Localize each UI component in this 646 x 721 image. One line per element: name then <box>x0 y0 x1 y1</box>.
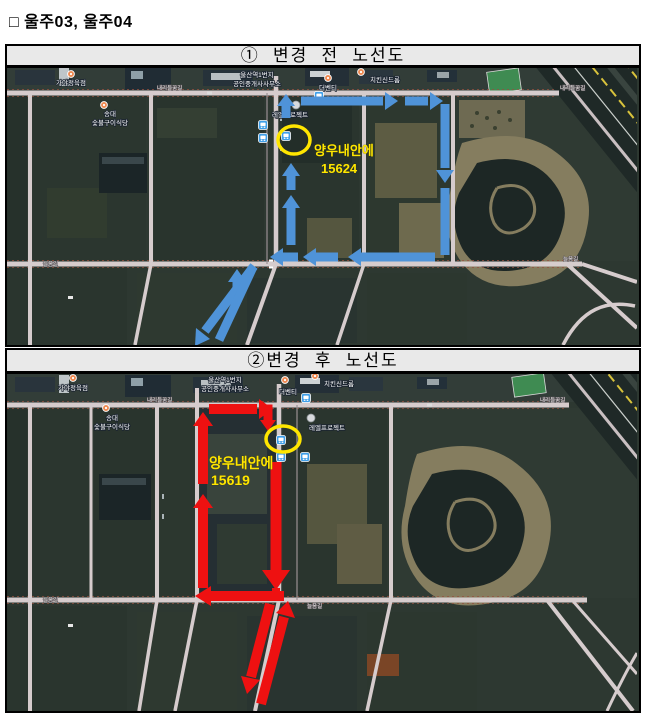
bus-stop-icon <box>259 121 268 130</box>
poi-dot-icon <box>101 102 108 109</box>
bus-stop-icon-highlighted <box>282 132 291 141</box>
label-office-line2: 공인중개사사무소 <box>201 384 249 393</box>
sports-field <box>512 374 546 397</box>
road-label-bottom: 늘음길 <box>307 602 322 610</box>
poi-dot-icon <box>325 75 332 82</box>
road-label-top: 내리들꿈길 <box>147 396 172 404</box>
panel-header-after-text: ②변경 후 노선도 <box>247 351 398 370</box>
road-label-bottom: 늘음길 <box>43 260 58 268</box>
road-label-top: 내리들꿈길 <box>560 84 585 92</box>
bus-stop-icon <box>259 134 268 143</box>
road-label-top: 내리들꿈길 <box>157 84 182 92</box>
label-chicken-shop: 치킨신드롬 <box>370 75 400 84</box>
label-office-line1: 울산역1번지 <box>208 375 242 384</box>
road-label-bottom: 늘음길 <box>563 255 578 263</box>
label-butcher-shop: 가야정육점 <box>56 78 86 87</box>
road-label-top: 내리들꿈길 <box>540 396 565 404</box>
label-project: 레엘프로젝트 <box>309 423 345 432</box>
poi-dot-icon <box>312 374 319 379</box>
label-cafe: 더벤티 <box>319 83 337 92</box>
label-restaurant-line1: 송대 <box>106 414 118 422</box>
label-restaurant-line2: 숯불구이식당 <box>92 118 128 127</box>
map-after-frame: 가야정육점 울산역1번지 공인중개사사무소 더벤티 치킨신드롬 송대 숯불구이식… <box>5 372 641 713</box>
panel-header-after: ②변경 후 노선도 <box>5 348 641 373</box>
poi-dot-icon <box>103 405 110 412</box>
label-office-line1: 울산역1번지 <box>240 70 274 79</box>
label-butcher-shop: 가야정육점 <box>58 383 88 392</box>
satellite-map-before: 가야정육점 울산역1번지 공인중개사사무소 더벤티 치킨신드롬 송대 숯불구이식… <box>7 68 637 345</box>
stop-name-annotation: 양우내안에 <box>314 143 374 158</box>
bus-stop-icon <box>277 453 286 462</box>
stop-number-annotation: 15624 <box>321 161 358 176</box>
poi-dot-icon <box>68 71 75 78</box>
bus-stop-icon <box>302 394 311 403</box>
poi-gray-icon <box>307 414 315 422</box>
stop-number-annotation: 15619 <box>211 472 250 488</box>
label-restaurant-line2: 숯불구이식당 <box>94 422 130 431</box>
stop-name-annotation: 양우내안에 <box>209 455 273 471</box>
label-restaurant-line1: 송대 <box>104 110 116 118</box>
label-office-line2: 공인중개사사무소 <box>233 79 281 88</box>
panel-header-before: ① 변경 전 노선도 <box>5 44 641 67</box>
poi-dot-icon <box>70 375 77 382</box>
route-arrow-segment <box>263 409 268 420</box>
satellite-map-after: 가야정육점 울산역1번지 공인중개사사무소 더벤티 치킨신드롬 송대 숯불구이식… <box>7 374 637 711</box>
bus-stop-icon-highlighted <box>277 436 286 445</box>
poi-dot-icon <box>282 377 289 384</box>
label-cafe: 더벤티 <box>279 387 297 396</box>
bus-stop-icon <box>301 453 310 462</box>
map-before-frame: 가야정육점 울산역1번지 공인중개사사무소 더벤티 치킨신드롬 송대 숯불구이식… <box>5 66 641 347</box>
sports-field <box>487 68 522 94</box>
panel-header-before-text: ① 변경 전 노선도 <box>241 46 406 65</box>
poi-dot-icon <box>358 69 365 76</box>
road-label-bottom: 늘음길 <box>43 596 58 604</box>
label-chicken-shop: 치킨신드롬 <box>324 379 354 388</box>
page-title: □ 울주03, 울주04 <box>9 8 132 32</box>
